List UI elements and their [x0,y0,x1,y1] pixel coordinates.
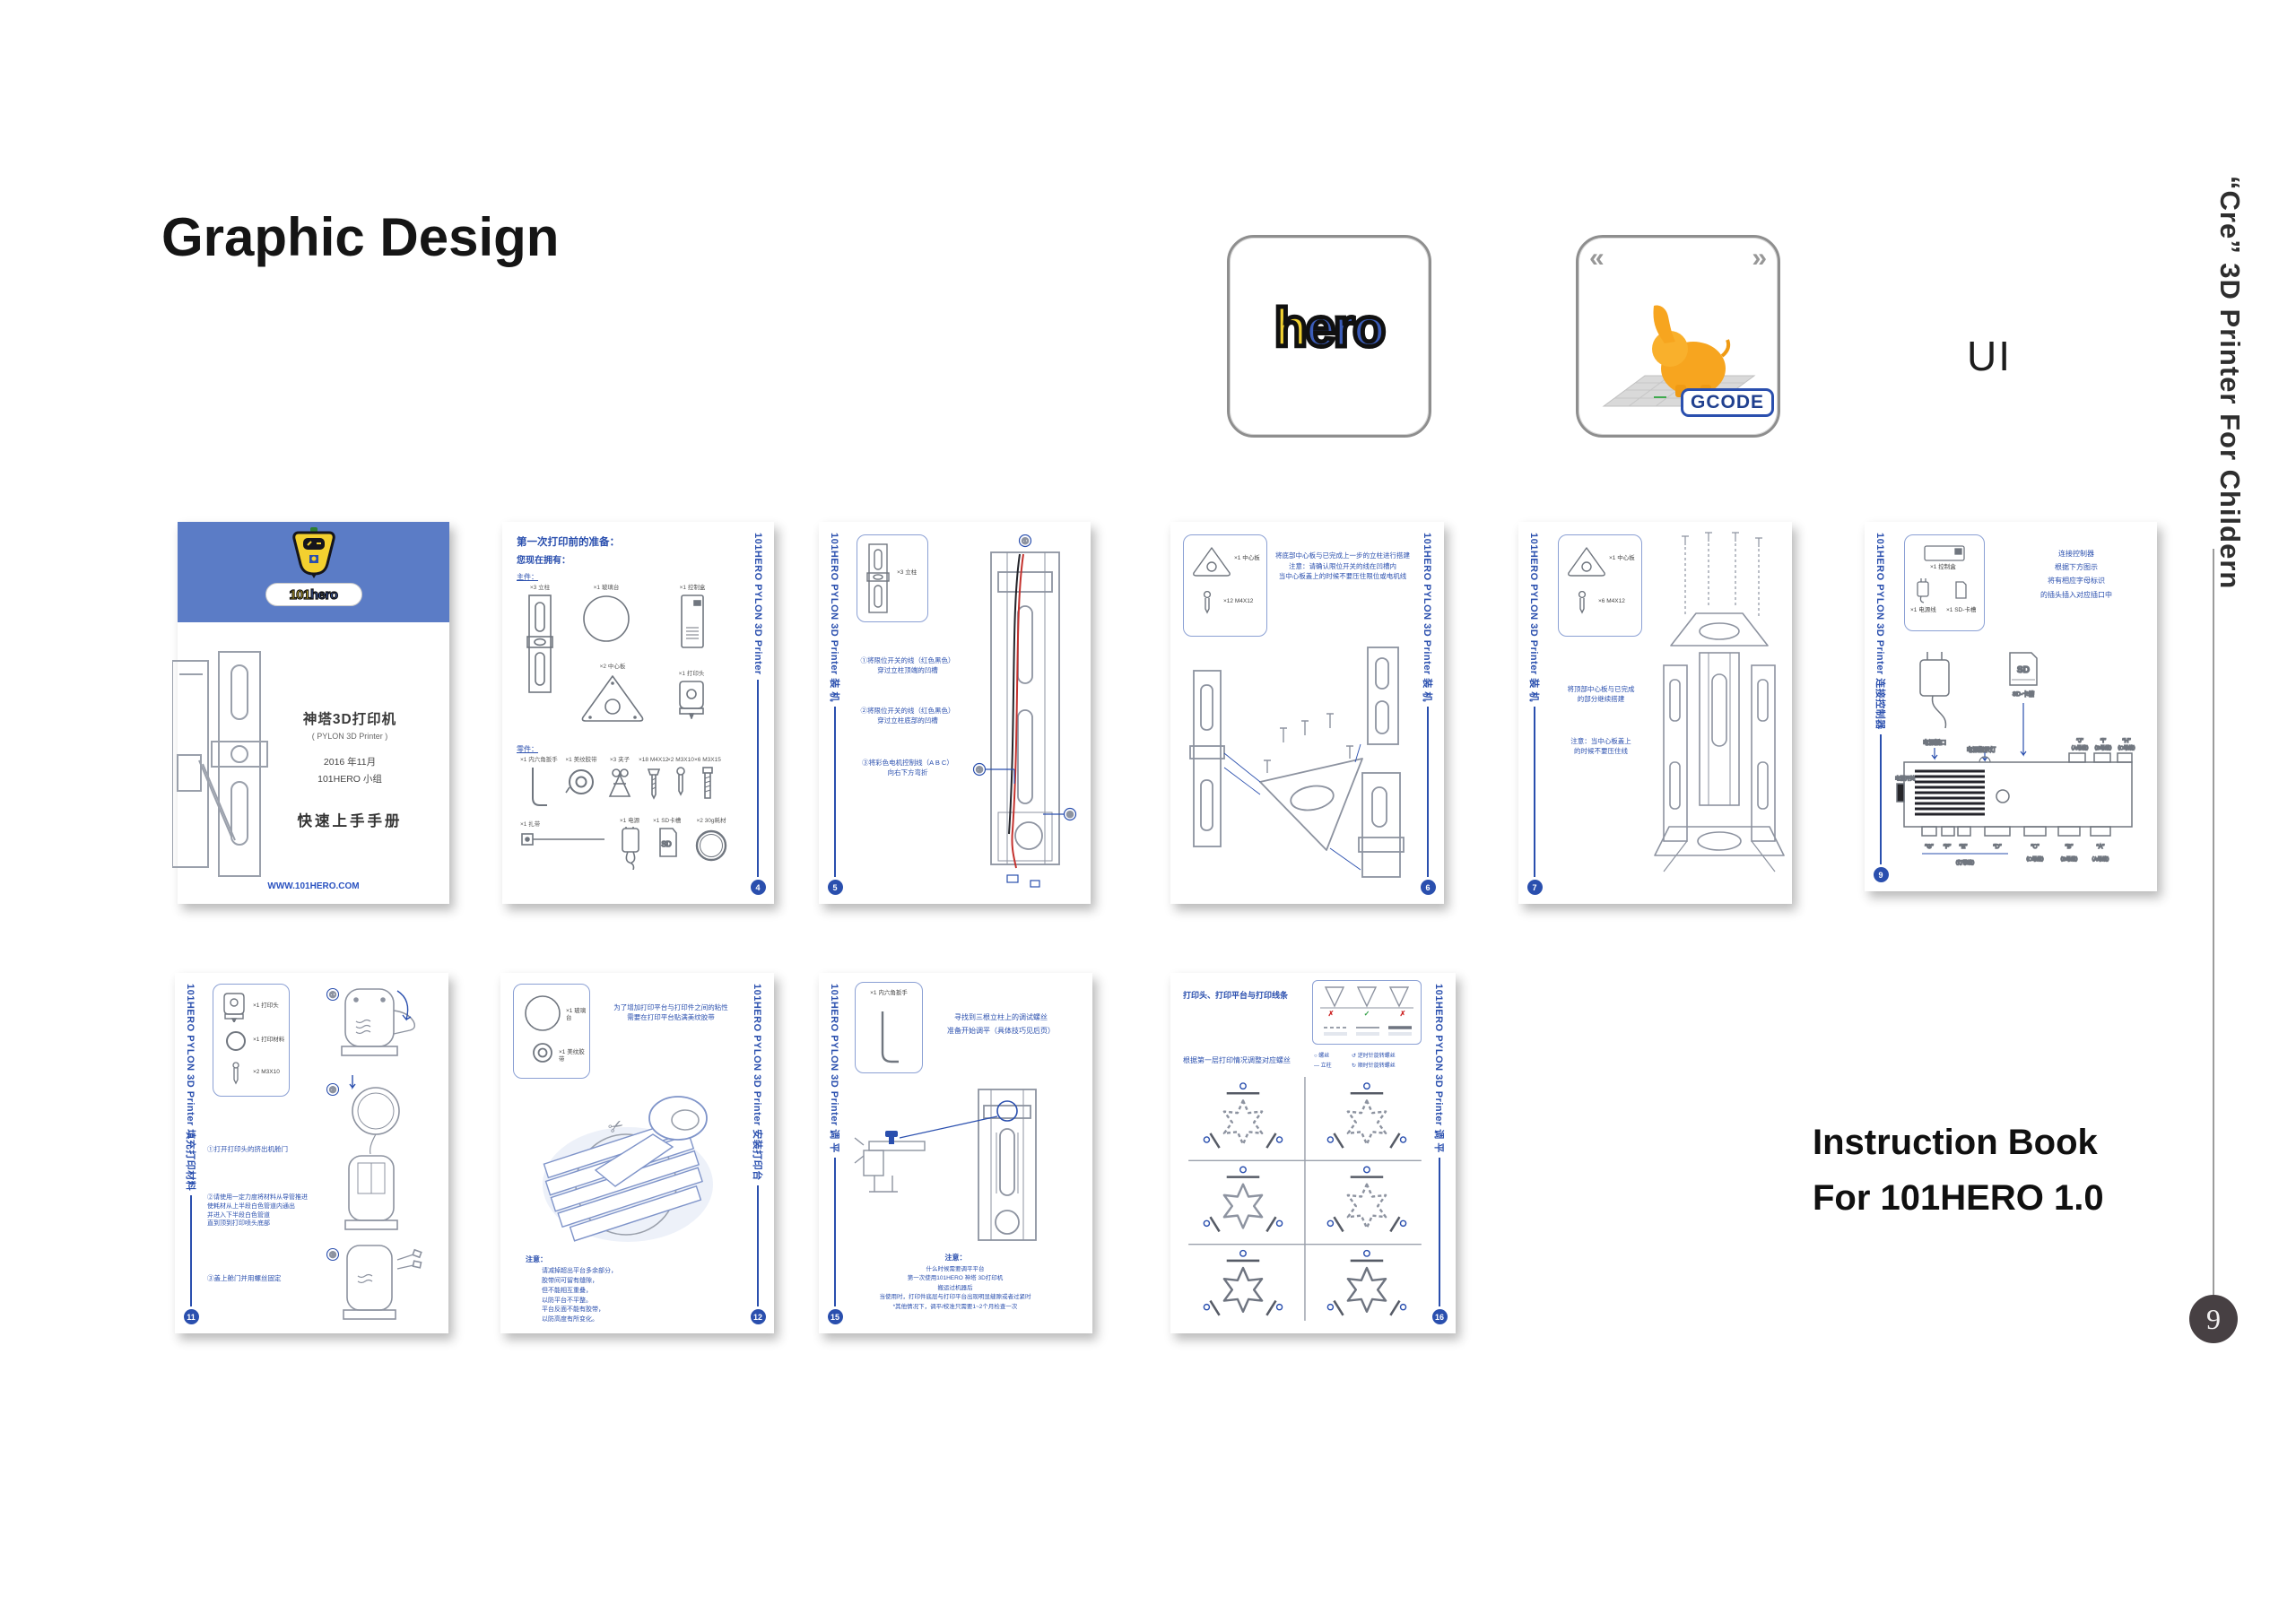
mark-x: ✗ [1328,1010,1335,1018]
page11-step-3: ③盖上舱门并用螺丝固定 [207,1274,318,1284]
page-number: 5 [828,880,843,895]
inset-label: ×1 玻璃台 [566,1008,589,1023]
page15-note: 什么时候需要调平平台第一次使用101HERO 神塔 3D打印机搬运过机器后 当使… [840,1265,1070,1312]
page-number-badge: 9 [2189,1295,2238,1343]
part-label: ×1 打印头 [679,671,705,678]
page16-subtitle: 根据第一层打印情况调整对应螺丝 [1183,1055,1309,1065]
manual-page-15[interactable]: 101HERO PYLON 3D Printer 调 平 15 ×1 内六角扳手… [819,973,1092,1333]
page15-intro: 寻找到三根立柱上的调试螺丝准备开始调平（具体技巧见后页） [925,1011,1077,1037]
sidebar-label: 101HERO PYLON 3D Printer 装 机 [1421,533,1435,702]
sidebar-label: 101HERO PYLON 3D Printer 装 机 [1527,533,1542,702]
part-power-adapter: ×1 电源 [615,818,644,870]
part-label: ×3 立柱 [530,585,550,592]
page7-art [1653,531,1786,895]
svg-text:②: ② [976,766,983,775]
cover-header-band: 101hero [178,522,449,622]
inset-label: ×1 中心板 [1609,555,1635,562]
page12-art: ✂ [527,1084,741,1251]
part-print-head: ×1 打印头 [678,671,705,719]
page16-title: 打印头、打印平台与打印线条 [1183,989,1309,1001]
page-number: 16 [1432,1309,1448,1324]
page16-marks: ✗ ✓ ✗ [1313,1010,1421,1018]
sidebar-line [834,707,836,877]
page6-note: 将底部中心板与已完成上一步的立柱进行搭建注意：请确认限位开关的线在凹槽内当中心板… [1267,551,1418,582]
legend-item: ○ 螺丝 [1314,1052,1352,1062]
part-label: ×18 M4X12 [639,757,668,764]
page16-nozzle-box: ✗ ✓ ✗ [1312,980,1422,1045]
page5-step-2: ②将限位开关的线（红色黑色）穿过立柱底部的凹槽 [849,707,966,725]
inset-label: ×1 SD-卡槽 [1946,607,1976,614]
manual-page-9[interactable]: 101HERO PYLON 3D Printer 连接控制器 9 ×1 控制盒 … [1865,522,2157,891]
svg-text:①: ① [1022,537,1029,546]
inset-label: ×12 M4X12 [1223,598,1253,605]
svg-text:（B母线）: （B母线） [2057,855,2081,863]
page-number: 12 [751,1309,766,1324]
hero-logo-h: h [1274,298,1306,358]
part-label: ×1 美纹胶带 [565,757,596,764]
page7-sidebar: 101HERO PYLON 3D Printer 装 机 7 [1524,533,1545,895]
page6-art [1178,646,1422,893]
page4-main-link: 主件： [517,572,538,582]
sidebar-label: 101HERO PYLON 3D Printer [752,533,763,675]
part-sd-slot: ×1 SD卡槽 SD [653,818,681,861]
sidebar-label: 101HERO PYLON 3D Printer 装 机 [828,533,842,702]
page5-step-3: ③将彩色电机控制线（A B C）向右下方弯折 [849,759,966,777]
part-label: ×2 30g耗材 [696,818,726,825]
part-center-plate: ×2 中心板 [578,664,648,725]
mark-x: ✗ [1400,1010,1406,1018]
sidebar-line [834,1158,836,1306]
portfolio-page: Graphic Design hero « » GCODE UI “ [0,0,2296,1623]
part-label: ×1 内六角扳手 [520,757,558,764]
svg-text:（C母线）: （C母线） [2115,744,2138,751]
sidebar-label: 101HERO PYLON 3D Printer 调 平 [1432,984,1447,1153]
legend-item: — 立柱 [1314,1062,1352,1072]
sidebar-line [757,680,759,877]
mascot-icon [291,527,336,579]
page9-inset: ×1 控制盒 ×1 电源线 ×1 SD-卡槽 [1904,534,1985,631]
page11-step-1: ①打开打印头的挤出机舱门 [207,1145,318,1155]
mark-check: ✓ [1364,1010,1370,1018]
page16-star-grid [1181,1077,1432,1328]
cover-text-block: 神塔3D打印机 ( PYLON 3D Printer ) 2016 年11月 1… [260,708,439,830]
sidebar-line [1439,1158,1440,1306]
manual-page-6[interactable]: 101HERO PYLON 3D Printer 装 机 6 ×1 中心板 ×1… [1170,522,1444,904]
svg-text:电源指示灯: 电源指示灯 [1967,745,1996,753]
page4-heading-1: 第一次打印前的准备： [517,534,620,549]
chevron-right-icon[interactable]: » [1752,245,1767,272]
manual-page-12[interactable]: 101HERO PYLON 3D Printer 安装打印台 12 ×1 玻璃台… [500,973,774,1333]
page9-sidebar: 101HERO PYLON 3D Printer 连接控制器 9 [1870,533,1892,882]
inset-label: ×1 打印材料 [253,1037,284,1044]
svg-text:“G”: “G” [1925,844,1933,850]
sidebar-label: 101HERO PYLON 3D Printer 填充打印材料 [184,984,198,1191]
part-hex-wrench: ×1 内六角扳手 [520,757,558,809]
manual-page-11[interactable]: 101HERO PYLON 3D Printer 填充打印材料 11 ×1 打印… [175,973,448,1333]
ui-label: UI [1967,332,2012,380]
svg-text:“H”: “H” [2122,738,2130,744]
part-label: ×2 M3X10 [667,757,694,764]
svg-text:电源开关: 电源开关 [1895,775,1916,782]
page4-parts-link: 零件： [517,744,538,754]
svg-text:SD: SD [661,840,671,848]
sidebar-line [757,1185,759,1306]
svg-text:“J”: “J” [2076,738,2083,744]
caption-line-2: For 101HERO 1.0 [1813,1170,2104,1226]
svg-text:“C”: “C” [2031,844,2039,850]
svg-text:（A母线）: （A母线） [2089,855,2112,863]
part-masking-tape: ×1 美纹胶带 [565,757,597,798]
page-number: 6 [1421,880,1436,895]
svg-text:电源插口: 电源插口 [1923,738,1946,746]
page-number: 9 [1874,867,1889,882]
svg-text:（灯带线）: （灯带线） [1952,859,1978,866]
part-screw-m3x15: ×6 M3X15 [694,757,721,805]
page12-intro: 为了增加打印平台与打印件之间的粘性需要在打印平台贴满美纹胶带 [590,1003,752,1022]
part-label: ×1 玻璃台 [594,585,620,592]
page9-art: SD SD-卡槽 电源插口 电源指示灯 “J” “I” “H” （A母线） （B… [1892,647,2150,882]
svg-text:SD: SD [2017,665,2030,675]
svg-text:③: ③ [1066,811,1074,820]
page5-step-1: ①将限位开关的线（红色黑色）穿过立柱顶端的凹槽 [849,656,966,675]
page9-note: 连接控制器根据下方图示将有相应字母标识的插头插入对应插口中 [2013,547,2139,602]
page4-heading-2: 您现在拥有： [517,552,570,566]
svg-text:“B”: “B” [2066,844,2074,850]
sidebar-label: 101HERO PYLON 3D Printer 调 平 [828,984,842,1153]
part-zip-tie: ×1 扎带 [520,821,606,850]
cover-team: 101HERO 小组 [260,772,439,785]
svg-text:①: ① [329,991,336,1000]
page7-inset: ×1 中心板 ×6 M4X12 [1558,534,1642,637]
svg-text:“E”: “E” [1960,844,1968,850]
logo-101: 101 [289,587,310,603]
page15-note-title: 注意： [819,1253,1092,1263]
manual-page-16[interactable]: 101HERO PYLON 3D Printer 调 平 16 打印头、打印平台… [1170,973,1456,1333]
page-number: 11 [184,1309,199,1324]
page15-art [842,1086,1074,1247]
cover-subtitle: ( PYLON 3D Printer ) [260,732,439,741]
cover-url: WWW.101HERO.COM [178,881,449,891]
svg-text:（C母线）: （C母线） [2023,855,2047,863]
page5-sidebar: 101HERO PYLON 3D Printer 装 机 5 [824,533,846,895]
part-label: ×1 电源 [620,818,639,825]
sidebar-line [190,1195,192,1306]
page11-art: ① ② ③ [326,980,442,1328]
part-label: ×6 M3X15 [694,757,721,764]
legend-item: ↺ 逆时针旋转螺丝 [1352,1052,1423,1062]
sidebar-label: 101HERO PYLON 3D Printer 安装打印台 [751,984,765,1181]
page-title: Graphic Design [161,206,559,268]
gcode-badge: GCODE [1681,388,1774,417]
manual-page-4[interactable]: 101HERO PYLON 3D Printer 4 第一次打印前的准备： 您现… [502,522,774,904]
page16-legend: ○ 螺丝 ↺ 逆时针旋转螺丝 — 立柱 ↻ 顺时针旋转螺丝 [1314,1052,1423,1072]
part-label: ×1 扎带 [520,821,540,829]
page11-sidebar: 101HERO PYLON 3D Printer 填充打印材料 11 [180,984,202,1324]
sidebar-line [1427,707,1429,877]
chevron-left-icon[interactable]: « [1589,245,1605,272]
manual-page-cover[interactable]: 101hero 神塔3D打印机 ( PYLON 3D Printer ) 201… [178,522,449,904]
svg-text:（B母线）: （B母线） [2092,744,2115,751]
svg-text:“A”: “A” [2097,844,2105,850]
part-screw-m4x12: ×18 M4X12 [639,757,668,802]
svg-text:“F”: “F” [1944,844,1951,850]
manual-page-7[interactable]: 101HERO PYLON 3D Printer 装 机 7 ×1 中心板 ×6… [1518,522,1792,904]
part-clip: ×3 夹子 [604,757,635,802]
inset-label: ×1 中心板 [1234,555,1260,562]
page7-note-1: 将顶部中心板与已完成的部分继续搭建 [1551,685,1651,704]
svg-text:SD-卡槽: SD-卡槽 [2013,690,2035,698]
page15-inset: ×1 内六角扳手 [855,982,923,1073]
part-control-box: ×1 控制盒 [678,585,707,649]
page-number: 4 [751,880,766,895]
page12-note: 请减掉超出平台多余部分，胶带间可留有缝隙，但不能相互重叠， 以防平台不平整。平台… [542,1267,694,1325]
svg-text:②: ② [329,1086,336,1095]
inset-label: ×3 立柱 [897,569,917,577]
cover-title: 神塔3D打印机 [260,708,439,728]
manual-page-5[interactable]: 101HERO PYLON 3D Printer 装 机 5 ×3 立柱 ①将限… [819,522,1091,904]
cover-handbook: 快速上手手册 [260,809,439,830]
part-glass: ×1 玻璃台 [581,585,631,644]
inset-label: ×6 M4X12 [1598,598,1625,605]
page5-inset: ×3 立柱 [857,534,928,622]
inset-label: ×1 内六角扳手 [856,990,922,997]
part-screw-m3x10: ×2 M3X10 [667,757,694,798]
svg-text:“I”: “I” [2100,738,2106,744]
legend-item: ↻ 顺时针旋转螺丝 [1352,1062,1423,1072]
page12-inset: ×1 玻璃台 ×1 美纹胶带 [513,984,590,1079]
page11-step-2: ②请使用一定力度将材料从导管推进使耗材从上半段白色管道内通出并进入下半段白色管道… [207,1193,326,1228]
inset-label: ×1 打印头 [253,1002,279,1010]
page5-art: ① ② ③ [971,534,1077,890]
svg-text:③: ③ [329,1251,336,1260]
hero-app-icon[interactable]: hero [1227,235,1431,438]
page11-inset: ×1 打印头 ×1 打印材料 ×2 M3X10 [213,984,290,1097]
page4-sidebar: 101HERO PYLON 3D Printer 4 [747,533,769,895]
rail-divider-line [2213,549,2214,1296]
hero-logo: hero [1230,297,1429,359]
caption-line-1: Instruction Book [1813,1115,2104,1170]
101hero-logo: 101hero [265,583,362,606]
svg-text:“D”: “D” [1993,844,2001,850]
page12-note-title: 注意： [526,1254,547,1264]
instruction-caption: Instruction Book For 101HERO 1.0 [1813,1115,2104,1226]
part-label: ×1 SD卡槽 [653,818,681,825]
logo-hero: hero [310,587,338,603]
sidebar-line [1534,707,1535,877]
part-pillar: ×3 立柱 [526,585,554,694]
inset-label: ×1 美纹胶带 [559,1049,589,1064]
page6-inset: ×1 中心板 ×12 M4X12 [1183,534,1267,637]
hero-logo-ero: ero [1306,298,1384,358]
part-filament: ×2 30g耗材 [692,818,730,864]
part-label: ×1 控制盒 [680,585,706,592]
page-number: 7 [1527,880,1543,895]
page7-note-2: 注意：当中心板盖上的时候不要压住线 [1551,737,1651,756]
page12-sidebar: 101HERO PYLON 3D Printer 安装打印台 12 [747,984,769,1324]
sidebar-line [1880,734,1882,864]
svg-text:（A母线）: （A母线） [2068,744,2092,751]
inset-label: ×1 电源线 [1910,607,1936,614]
part-label: ×3 夹子 [610,757,630,764]
inset-label: ×1 控制盒 [1930,564,1956,571]
inset-label: ×2 M3X10 [253,1069,280,1076]
part-label: ×2 中心板 [600,664,626,671]
cover-date: 2016 年11月 [260,755,439,768]
sidebar-label: 101HERO PYLON 3D Printer 连接控制器 [1874,533,1888,730]
vertical-caption: “Cre” 3D Printer For Childern [2213,176,2246,589]
gcode-app-icon[interactable]: « » GCODE [1576,235,1780,438]
